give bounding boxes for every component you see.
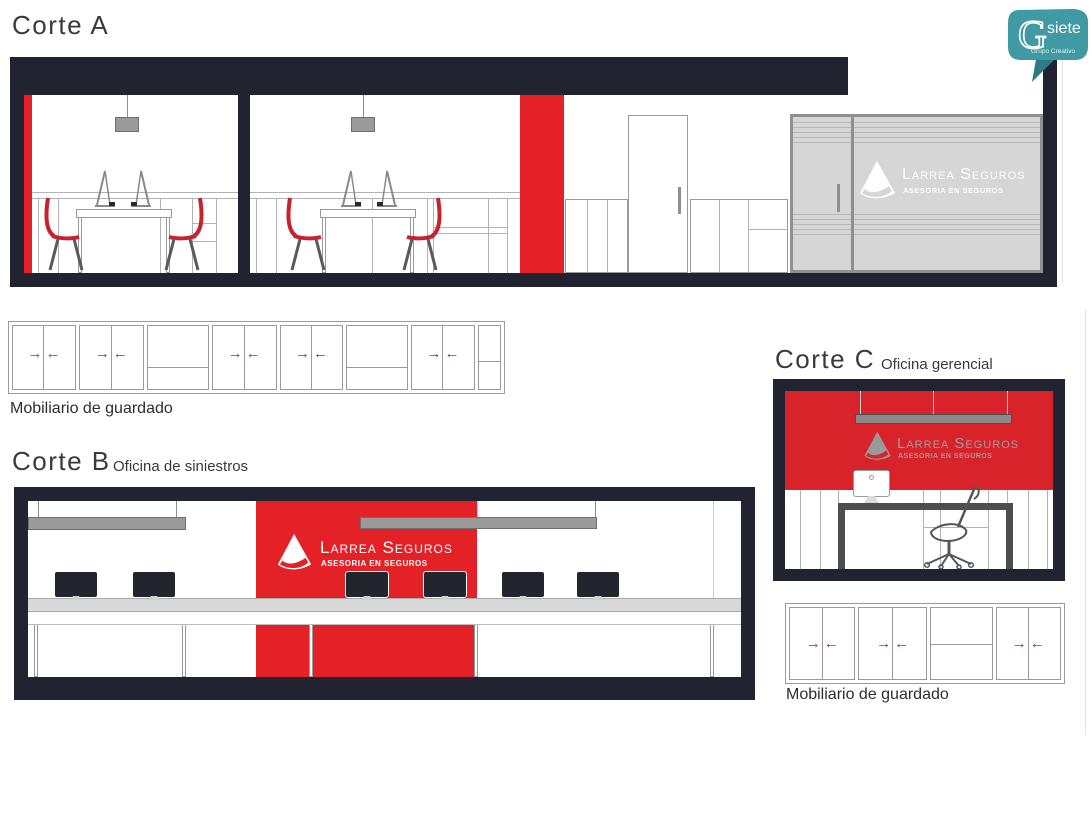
- slide-arrow-right: →: [95, 346, 110, 361]
- linear-light: [28, 517, 186, 530]
- gsiete-logo: G siete Grupo Creativo: [1002, 2, 1092, 94]
- shelf-line: [749, 229, 787, 230]
- corte-c-interior: Larrea Seguros ASESORIA EN SEGUROS: [785, 391, 1053, 569]
- shelf-line: [148, 367, 208, 368]
- counter-leg: [34, 625, 38, 677]
- red-chair: [38, 195, 90, 273]
- door-leaf: ←: [311, 326, 342, 389]
- sliding-door-pair: → ←: [12, 325, 76, 390]
- door-leaf: →: [213, 326, 244, 389]
- glass-door-frame: [851, 114, 854, 273]
- glass-door-handle: [837, 184, 840, 212]
- glass-partition: Larrea Seguros ASESORIA EN SEGUROS: [790, 114, 1043, 273]
- sliding-door-pair: → ←: [280, 325, 344, 390]
- slide-arrow-left: ←: [313, 346, 328, 361]
- door-leaf: ←: [244, 326, 276, 389]
- door-handle: [678, 187, 681, 214]
- sliding-door-pair: → ←: [79, 325, 144, 390]
- cabinet-label-top: Mobiliario de guardado: [10, 400, 173, 418]
- slide-arrow-right: →: [426, 346, 441, 361]
- partition-wall: [238, 95, 250, 273]
- low-cabinet: [565, 199, 628, 273]
- larrea-logo-icon: [862, 431, 894, 461]
- storage-cabinet-elevation: → ← → ← → ← → ← → ←: [8, 321, 505, 394]
- slide-arrow-right: →: [228, 346, 243, 361]
- slide-arrow-right: →: [27, 346, 42, 361]
- red-wall-strip: [24, 95, 32, 273]
- low-cabinet: [690, 199, 788, 273]
- monitor-profile: [338, 169, 364, 211]
- red-chair: [280, 195, 332, 273]
- imac-stand: [864, 496, 879, 503]
- cabinet-joint: [748, 200, 749, 272]
- slide-arrow-left: ←: [824, 636, 839, 651]
- cabinet-joint: [276, 198, 277, 273]
- speech-bubble-tail: [1032, 59, 1055, 82]
- cabinet-joint: [507, 198, 508, 273]
- corte-a-title: Corte A: [12, 10, 109, 41]
- door-leaf: →: [13, 326, 43, 389]
- linear-light: [360, 517, 597, 529]
- door-leaf: ←: [442, 326, 474, 389]
- cabinet-label-bottom: Mobiliario de guardado: [786, 686, 949, 704]
- monitor: [132, 571, 176, 598]
- cabinet-joint: [1028, 490, 1029, 569]
- larrea-logo-icon: [858, 160, 898, 200]
- slide-arrow-left: ←: [113, 346, 128, 361]
- red-chair: [396, 195, 448, 273]
- open-shelf-section: [147, 325, 209, 390]
- open-shelf-section: [930, 607, 993, 680]
- red-accent-column: [520, 95, 564, 273]
- slide-arrow-left: ←: [246, 346, 261, 361]
- cabinet-joint: [820, 490, 821, 569]
- larrea-logo-text: Larrea Seguros: [320, 538, 453, 558]
- open-shelf-section: [346, 325, 407, 390]
- door-leaf: ←: [43, 326, 74, 389]
- gsiete-tagline: Grupo Creativo: [1031, 48, 1075, 55]
- slide-arrow-left: ←: [45, 346, 60, 361]
- corte-a-section: Larrea Seguros ASESORIA EN SEGUROS: [10, 57, 1057, 287]
- pendant-cord: [127, 95, 128, 117]
- light-cable: [595, 501, 596, 518]
- corte-b-title: Corte B: [12, 446, 111, 477]
- imac-back: [853, 470, 890, 497]
- office-chair: [913, 486, 1003, 569]
- linear-light: [855, 414, 1012, 424]
- sheet-border-line: [1085, 310, 1086, 735]
- cabinet-joint: [488, 198, 489, 273]
- corte-c-section: Larrea Seguros ASESORIA EN SEGUROS: [773, 379, 1065, 581]
- larrea-logo-tagline: ASESORIA EN SEGUROS: [903, 186, 1004, 195]
- cabinet-joint: [587, 200, 588, 272]
- cabinet-joint: [607, 200, 608, 272]
- door-leaf: ←: [892, 608, 926, 679]
- larrea-logo-tagline: ASESORIA EN SEGUROS: [321, 559, 428, 568]
- door-leaf: →: [412, 326, 443, 389]
- door-leaf: →: [281, 326, 311, 389]
- monitor: [501, 571, 545, 598]
- monitor: [345, 571, 389, 598]
- counter-fascia: [28, 612, 741, 625]
- corte-a-interior: Larrea Seguros ASESORIA EN SEGUROS: [24, 95, 1043, 273]
- sliding-door-pair: → ←: [789, 607, 855, 680]
- monitor: [54, 571, 98, 598]
- sliding-door-pair: → ←: [858, 607, 926, 680]
- shelf-line: [347, 367, 406, 368]
- door-leaf: →: [859, 608, 892, 679]
- slide-arrow-left: ←: [894, 636, 909, 651]
- larrea-logo-tagline: ASESORIA EN SEGUROS: [898, 453, 992, 460]
- light-cable: [860, 391, 861, 415]
- door-leaf: ←: [1028, 608, 1060, 679]
- pendant-cord: [363, 95, 364, 117]
- corte-b-subtitle: Oficina de siniestros: [113, 458, 248, 475]
- light-cable: [933, 391, 934, 415]
- light-cable: [38, 501, 39, 518]
- monitor-profile: [92, 169, 118, 211]
- frosted-stripes: [793, 122, 1040, 145]
- door-leaf: →: [790, 608, 822, 679]
- slide-arrow-right: →: [876, 636, 891, 651]
- pendant-light: [351, 117, 375, 132]
- desk-leg: [838, 510, 845, 569]
- drawing-sheet: Corte A: [0, 0, 1092, 819]
- apple-logo-mark: [869, 475, 874, 480]
- red-chair: [158, 195, 210, 273]
- corte-c-title: Corte C: [775, 344, 875, 375]
- storage-cabinet-elevation: → ← → ← → ←: [785, 603, 1065, 684]
- frosted-stripes: [793, 214, 1040, 237]
- monitor: [576, 571, 620, 598]
- cabinet-joint: [1047, 490, 1048, 569]
- corte-b-interior: Larrea Seguros ASESORIA EN SEGUROS: [28, 501, 741, 677]
- corte-c-subtitle: Oficina gerencial: [881, 356, 993, 373]
- monitor-profile: [128, 169, 154, 211]
- door: [628, 115, 688, 273]
- door-leaf: →: [80, 326, 111, 389]
- light-cable: [176, 501, 177, 518]
- sliding-door-pair: → ←: [212, 325, 277, 390]
- larrea-logo-icon: [276, 531, 314, 573]
- cabinet-joint: [719, 200, 720, 272]
- corte-b-section: Larrea Seguros ASESORIA EN SEGUROS: [14, 487, 755, 700]
- pendant-light: [115, 117, 139, 132]
- gsiete-name: siete: [1047, 20, 1081, 37]
- monitor: [423, 571, 467, 598]
- shelf-line: [479, 361, 500, 362]
- counter-leg: [474, 625, 478, 677]
- slide-arrow-left: ←: [1030, 636, 1045, 651]
- door-leaf: ←: [822, 608, 855, 679]
- counter-leg: [309, 625, 313, 677]
- slide-arrow-right: →: [1012, 636, 1027, 651]
- desk-leg: [1006, 510, 1013, 569]
- counter-leg: [182, 625, 186, 677]
- door-leaf: ←: [111, 326, 143, 389]
- light-cable: [1007, 391, 1008, 415]
- end-shelf-section: [478, 325, 501, 390]
- slide-arrow-right: →: [806, 636, 821, 651]
- counter-leg: [710, 625, 714, 677]
- cabinet-joint: [216, 198, 217, 273]
- light-cable: [477, 501, 478, 518]
- slide-arrow-left: ←: [444, 346, 459, 361]
- cabinet-joint: [800, 490, 801, 569]
- shelf-line: [931, 644, 992, 645]
- larrea-logo-text: Larrea Seguros: [897, 435, 1019, 452]
- work-counter: [28, 598, 741, 612]
- door-leaf: →: [997, 608, 1028, 679]
- sliding-door-pair: → ←: [411, 325, 476, 390]
- slide-arrow-right: →: [295, 346, 310, 361]
- sliding-door-pair: → ←: [996, 607, 1062, 680]
- cabinet-joint: [256, 198, 257, 273]
- larrea-logo-text: Larrea Seguros: [902, 166, 1026, 184]
